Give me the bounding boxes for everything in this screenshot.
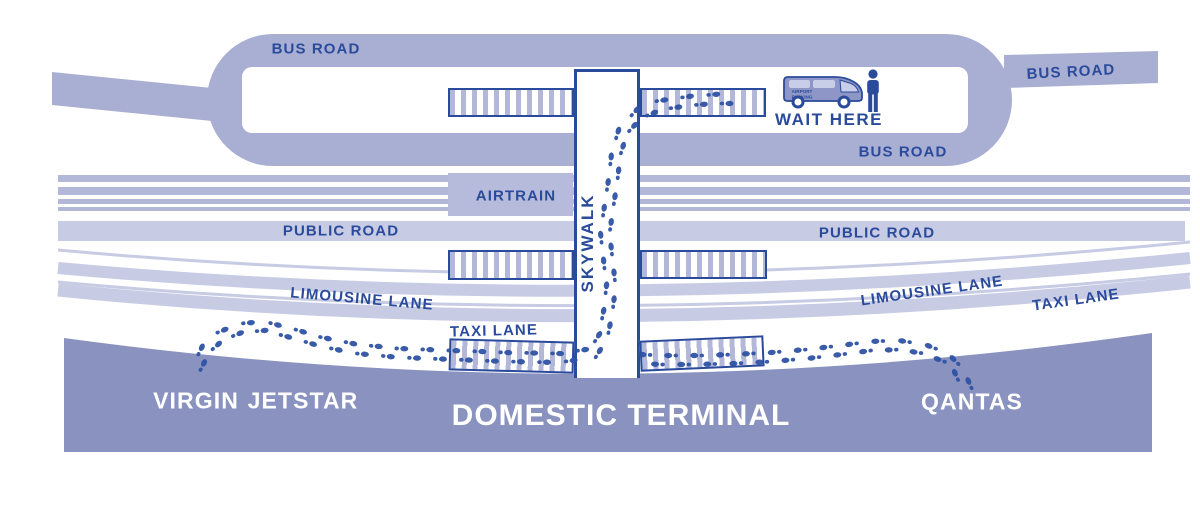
bus-road-crossing-right [640,88,766,117]
bus-road-label-inner: BUS ROAD [859,144,948,161]
jetstar-terminal-label: JETSTAR [248,388,359,415]
skywalk-label: SKYWALK [578,194,598,293]
public-road-crossing-left [448,250,574,280]
public-road-label-left: PUBLIC ROAD [283,223,399,240]
airtrain-label: AIRTRAIN [476,188,556,205]
person-torso [867,80,879,95]
van-side-text-line1: AIRPORT [792,89,813,94]
person-icon [864,69,882,115]
person-leg [868,94,872,112]
bus-road-label-top: BUS ROAD [272,41,361,58]
virgin-terminal-label: VIRGIN [153,388,239,415]
van-wheel [793,97,803,107]
bus-road-crossing-left [448,88,574,117]
van-window [789,80,810,88]
qantas-terminal-label: QANTAS [921,389,1023,416]
bus-road-entry [52,72,212,121]
taxi-lane-label-left: TAXI LANE [450,321,538,340]
van-window [813,80,835,88]
public-road-label-right: PUBLIC ROAD [819,225,935,242]
domestic-terminal-label: DOMESTIC TERMINAL [452,399,791,433]
terminal-crossing-right [639,335,764,371]
person-leg [874,94,878,112]
shuttle-bus-icon: AIRPORT PARKING [781,72,865,114]
public-road-crossing-right [640,250,767,279]
terminal-crossing-left [449,338,575,373]
terminal-transfer-map: BUS ROAD BUS ROAD BUS ROAD PUBLIC ROAD P… [0,0,1200,508]
person-head [868,69,877,78]
van-wheel [839,97,849,107]
